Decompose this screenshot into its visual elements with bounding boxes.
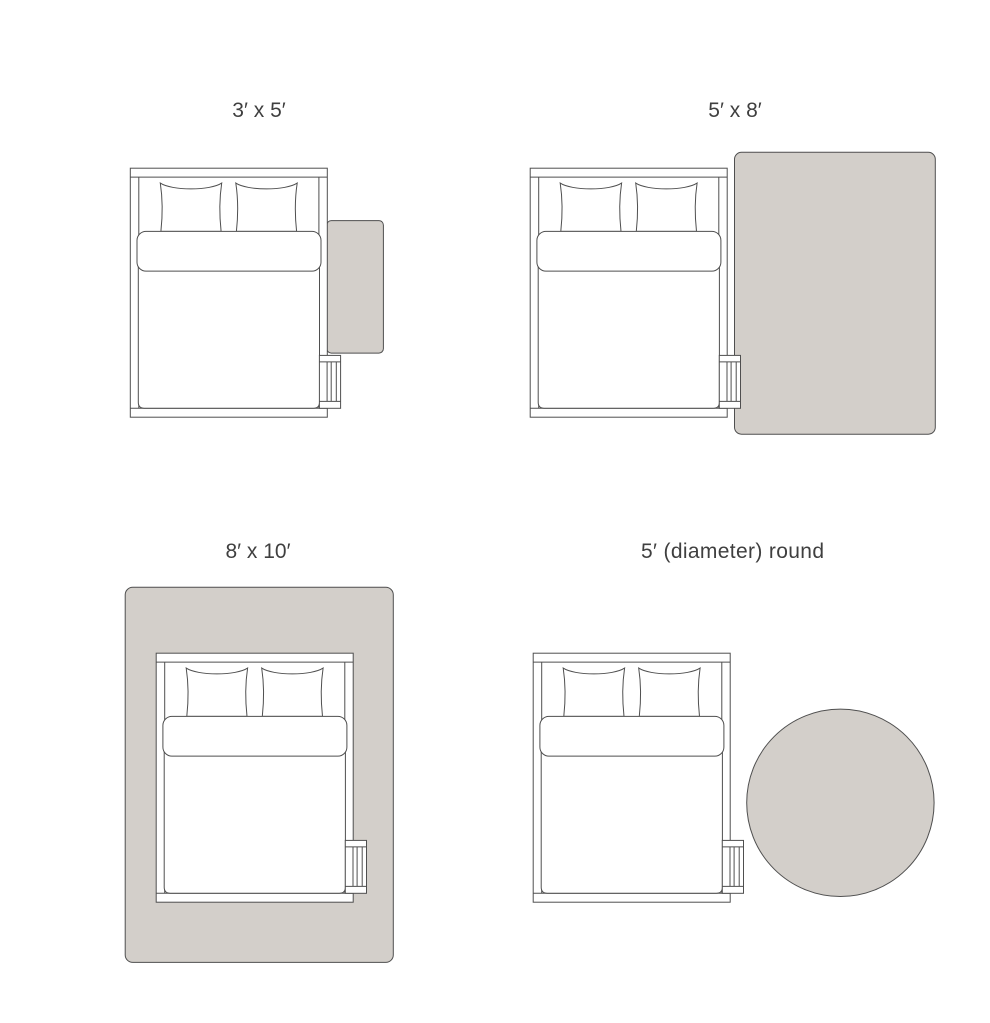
svg-text:3′ x 5′: 3′ x 5′ [232,99,285,122]
svg-text:5′ (diameter) round: 5′ (diameter) round [641,540,824,563]
svg-text:5′ x 8′: 5′ x 8′ [708,99,761,122]
svg-text:8′ x 10′: 8′ x 10′ [225,540,290,563]
